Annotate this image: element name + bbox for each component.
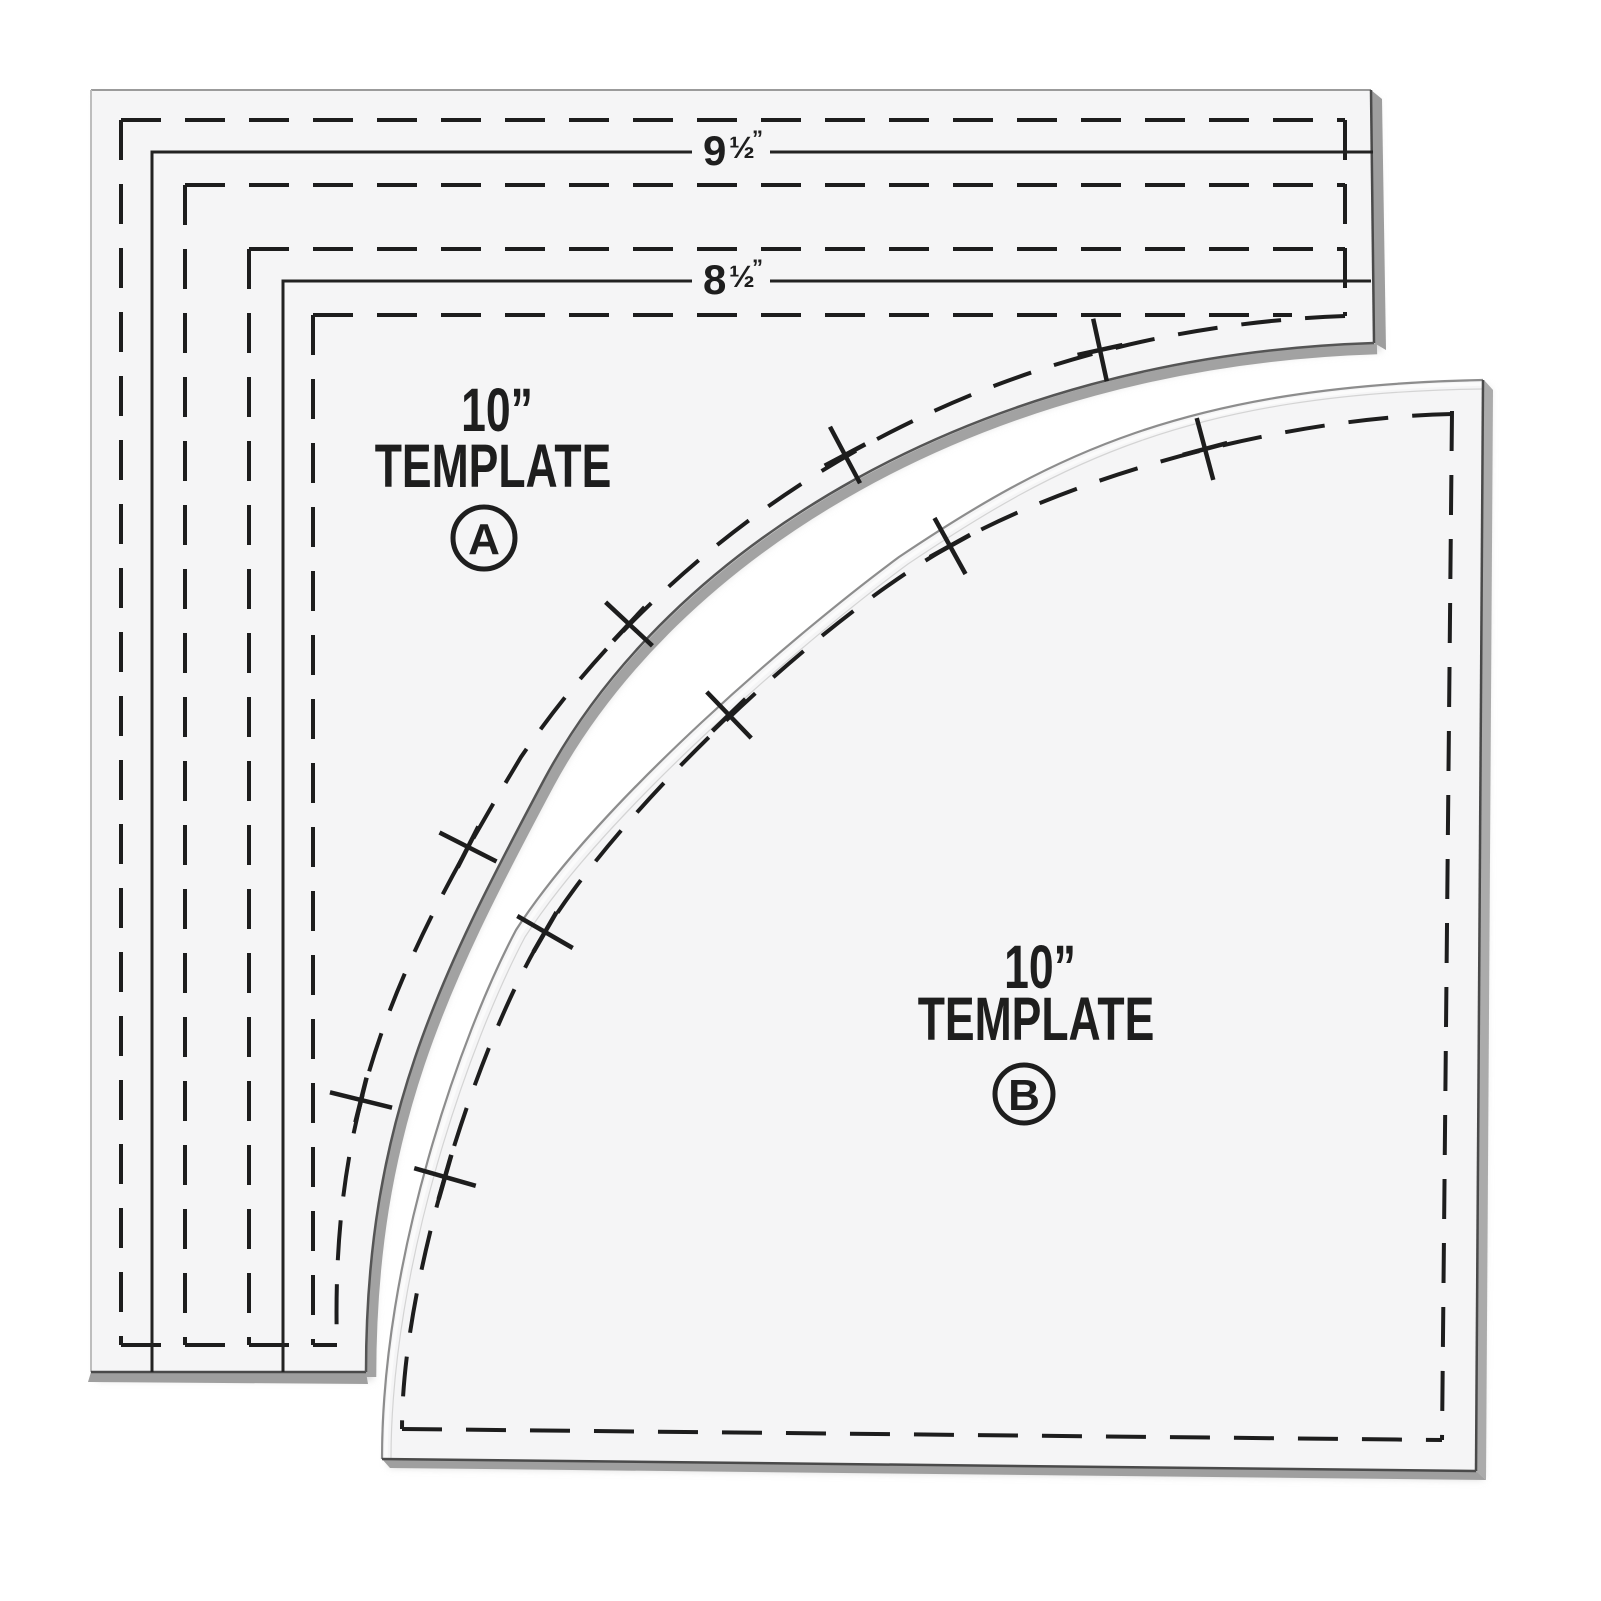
svg-text:B: B — [1008, 1071, 1040, 1120]
svg-text:8: 8 — [703, 256, 726, 303]
svg-text:A: A — [468, 515, 500, 564]
svg-text:½: ½ — [729, 130, 755, 165]
svg-text:TEMPLATE: TEMPLATE — [375, 433, 612, 500]
svg-text:”: ” — [752, 126, 763, 151]
svg-text:”: ” — [752, 255, 763, 280]
svg-text:9: 9 — [703, 127, 726, 174]
svg-text:TEMPLATE: TEMPLATE — [918, 986, 1155, 1053]
svg-text:½: ½ — [729, 259, 755, 294]
